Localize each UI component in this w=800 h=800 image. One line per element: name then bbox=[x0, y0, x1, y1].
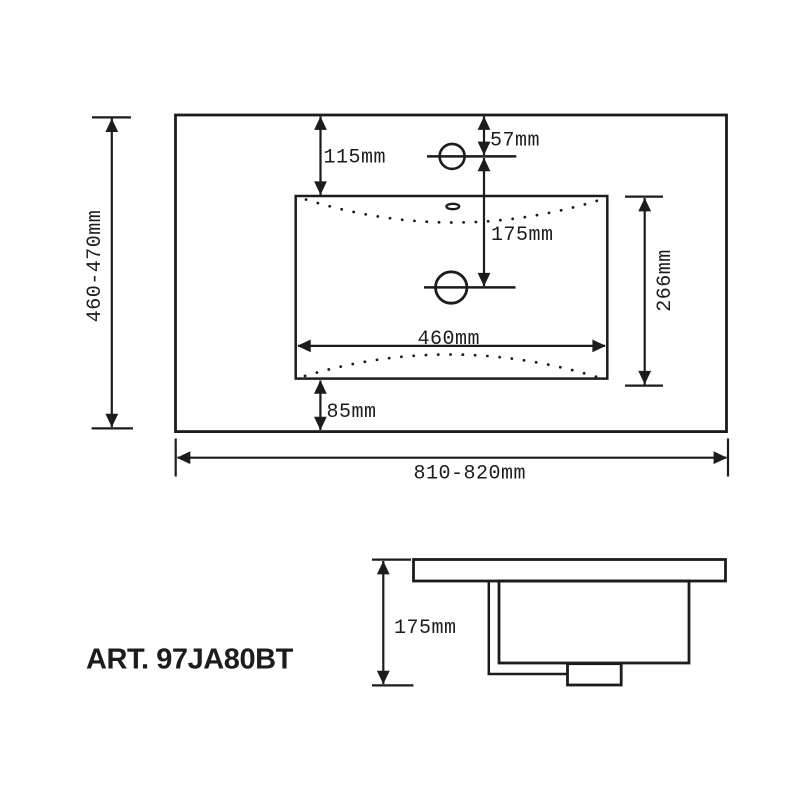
svg-text:115mm: 115mm bbox=[324, 147, 387, 170]
svg-text:57mm: 57mm bbox=[490, 130, 540, 153]
svg-text:175mm: 175mm bbox=[394, 617, 457, 640]
svg-text:266mm: 266mm bbox=[654, 249, 677, 312]
svg-text:460-470mm: 460-470mm bbox=[84, 210, 107, 323]
svg-text:810-820mm: 810-820mm bbox=[414, 463, 527, 486]
svg-text:175mm: 175mm bbox=[491, 224, 554, 247]
svg-text:85mm: 85mm bbox=[327, 401, 377, 424]
svg-text:ART. 97JA80BT: ART. 97JA80BT bbox=[86, 644, 294, 676]
svg-text:460mm: 460mm bbox=[418, 328, 481, 351]
